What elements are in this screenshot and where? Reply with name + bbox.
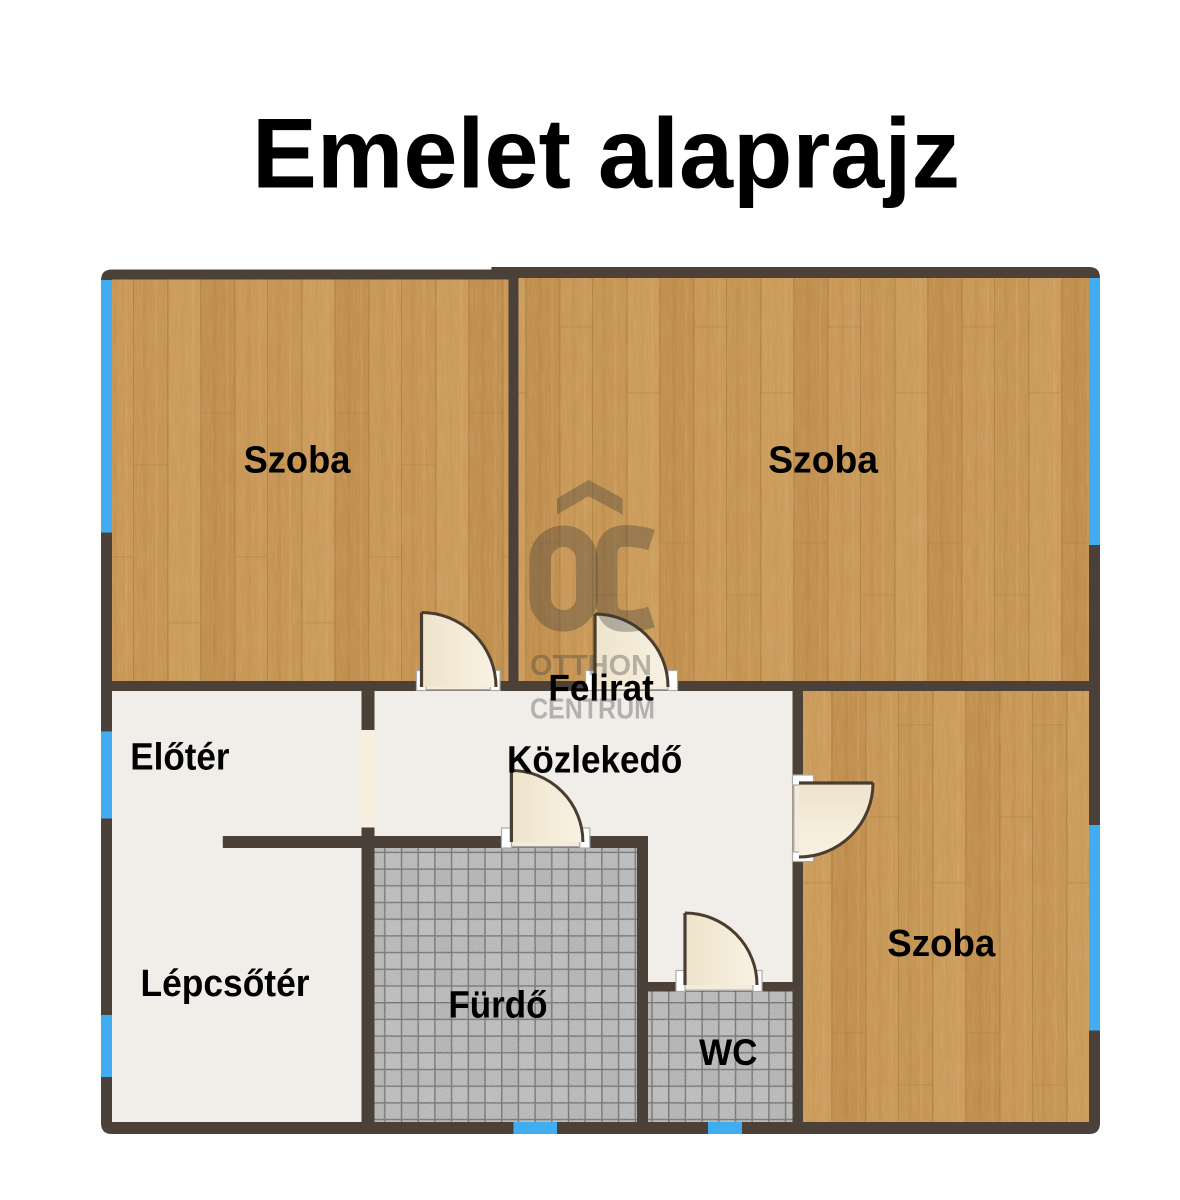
svg-text:Közlekedő: Közlekedő (507, 740, 682, 782)
svg-text:Lépcsőtér: Lépcsőtér (141, 963, 310, 1005)
svg-text:WC: WC (699, 1032, 758, 1073)
svg-text:Szoba: Szoba (887, 923, 996, 965)
svg-text:Előtér: Előtér (130, 737, 230, 779)
svg-text:Emelet alaprajz: Emelet alaprajz (252, 98, 960, 209)
svg-text:Szoba: Szoba (244, 440, 352, 482)
svg-text:Felirat: Felirat (548, 668, 654, 709)
svg-text:Fürdő: Fürdő (448, 985, 547, 1027)
svg-text:Szoba: Szoba (768, 440, 879, 482)
